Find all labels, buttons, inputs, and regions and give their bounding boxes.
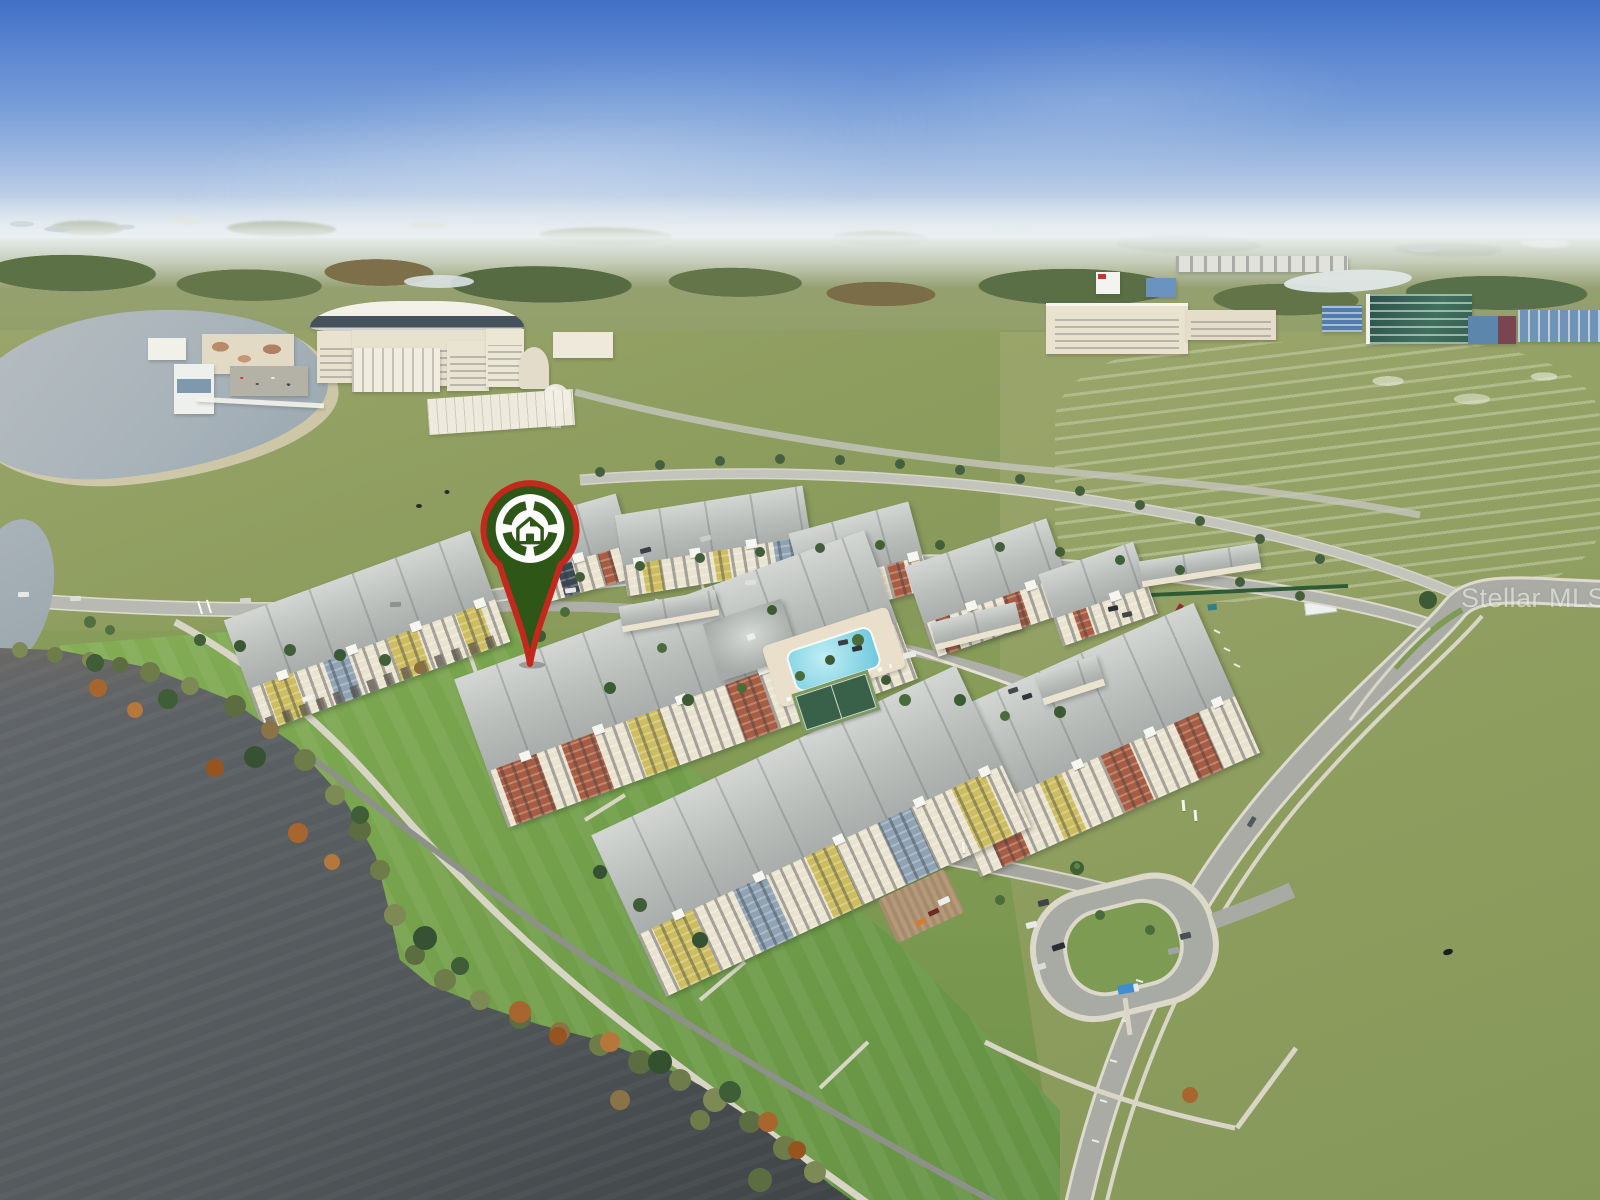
aerial-photo: Stellar MLS <box>0 0 1600 1200</box>
location-pin <box>466 478 594 670</box>
blue-box-truck <box>1117 982 1139 995</box>
cow <box>1442 948 1453 956</box>
trees <box>84 454 1437 1103</box>
parked-cars <box>18 535 1257 995</box>
decor-layer <box>0 0 1600 1200</box>
distant-water-flecks <box>10 221 1440 252</box>
orange-car <box>915 918 927 927</box>
watermark: Stellar MLS <box>1461 583 1600 614</box>
marsh-vegetation <box>12 642 826 1192</box>
